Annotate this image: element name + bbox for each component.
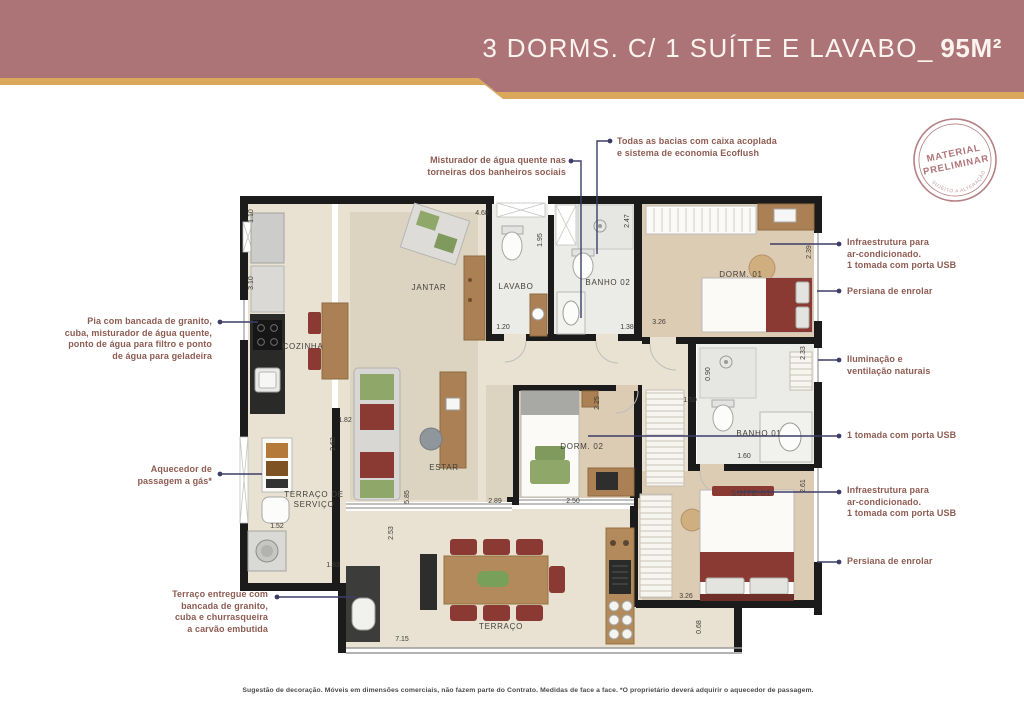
annotation-infra-ac-1: Infraestrutura para ar-condicionado. 1 t… xyxy=(847,237,956,272)
suite-bed xyxy=(700,486,794,601)
svg-text:7.15: 7.15 xyxy=(395,636,409,643)
svg-text:2.63: 2.63 xyxy=(330,437,337,451)
page-title-area: 95M² xyxy=(940,33,1002,63)
svg-text:2.53: 2.53 xyxy=(388,526,395,540)
room-label-banho02: BANHO 02 xyxy=(569,278,647,288)
footer-disclaimer: Sugestão de decoração. Móveis em dimensõ… xyxy=(112,687,944,694)
annotation-terraco-entregue: Terraço entregue com bancada de granito,… xyxy=(172,589,268,635)
svg-text:0.68: 0.68 xyxy=(696,620,703,634)
dorm01-bed xyxy=(702,278,812,332)
annotation-bacias: Todas as bacias com caixa acoplada e sis… xyxy=(617,136,777,159)
room-label-banho01: BANHO 01 xyxy=(720,429,798,439)
preliminary-stamp: MATERIAL PRELIMINAR SUJEITO A ALTERAÇÃO xyxy=(903,110,1007,214)
svg-text:1.10: 1.10 xyxy=(248,209,255,223)
svg-text:2.61: 2.61 xyxy=(800,479,807,493)
svg-text:1.83: 1.83 xyxy=(326,562,340,569)
room-label-cozinha: COZINHA xyxy=(268,342,338,352)
annotation-tomada-usb: 1 tomada com porta USB xyxy=(847,430,956,442)
svg-text:1.38: 1.38 xyxy=(620,324,634,331)
svg-text:3.26: 3.26 xyxy=(652,319,666,326)
annotation-iluminacao: Iluminação e ventilação naturais xyxy=(847,354,930,377)
annotation-aquecedor: Aquecedor de passagem a gás* xyxy=(137,464,212,487)
tv-console xyxy=(440,372,466,468)
svg-text:0.90: 0.90 xyxy=(705,367,712,381)
page-title: 3 DORMS. C/ 1 SUÍTE E LAVABO_ 95M² xyxy=(482,33,1002,64)
svg-text:1.20: 1.20 xyxy=(496,324,510,331)
svg-text:1.50: 1.50 xyxy=(683,397,697,404)
annotation-persiana-1: Persiana de enrolar xyxy=(847,286,932,298)
room-label-estar: ESTAR xyxy=(409,463,479,473)
annotation-pia: Pia com bancada de granito, cuba, mistur… xyxy=(65,316,212,362)
dining-sideboard xyxy=(464,256,485,340)
room-label-dorm01: DORM. 01 xyxy=(702,270,780,280)
svg-text:3.10: 3.10 xyxy=(248,276,255,290)
page-title-text: 3 DORMS. C/ 1 SUÍTE E LAVABO_ xyxy=(482,33,933,63)
svg-text:2.33: 2.33 xyxy=(800,346,807,360)
svg-text:1.95: 1.95 xyxy=(537,233,544,247)
terraco-sink xyxy=(346,566,380,642)
room-label-terraco: TERRAÇO xyxy=(464,622,538,632)
room-label-dorm02: DORM. 02 xyxy=(545,442,619,452)
room-label-lavabo: LAVABO xyxy=(487,282,545,292)
dorm01-wardrobe xyxy=(646,206,756,234)
svg-text:4.68: 4.68 xyxy=(475,210,489,217)
svg-text:2.47: 2.47 xyxy=(624,214,631,228)
annotation-infra-ac-2: Infraestrutura para ar-condicionado. 1 t… xyxy=(847,485,956,520)
svg-text:2.50: 2.50 xyxy=(566,498,580,505)
svg-text:2.89: 2.89 xyxy=(488,498,502,505)
estar-ottoman xyxy=(420,428,442,450)
dorm02-desk xyxy=(588,468,634,496)
svg-text:2.39: 2.39 xyxy=(806,245,813,259)
sofa xyxy=(354,368,400,500)
svg-text:1.82: 1.82 xyxy=(338,417,352,424)
terraco-grill xyxy=(606,528,634,644)
dorm01-desk xyxy=(758,204,814,230)
svg-text:5.85: 5.85 xyxy=(404,490,411,504)
svg-text:3.26: 3.26 xyxy=(679,593,693,600)
svg-text:1.52: 1.52 xyxy=(270,523,284,530)
annotation-persiana-2: Persiana de enrolar xyxy=(847,556,932,568)
room-label-suite: SUÍTE 01 xyxy=(712,489,790,499)
svg-text:1.60: 1.60 xyxy=(737,453,751,460)
room-label-servico: TERRAÇO DE SERVIÇO xyxy=(280,490,348,509)
terraco-tv xyxy=(420,554,437,610)
room-label-jantar: JANTAR xyxy=(394,283,464,293)
annotation-misturador: Misturador de água quente nas torneiras … xyxy=(427,155,566,178)
svg-text:2.25: 2.25 xyxy=(594,396,601,410)
